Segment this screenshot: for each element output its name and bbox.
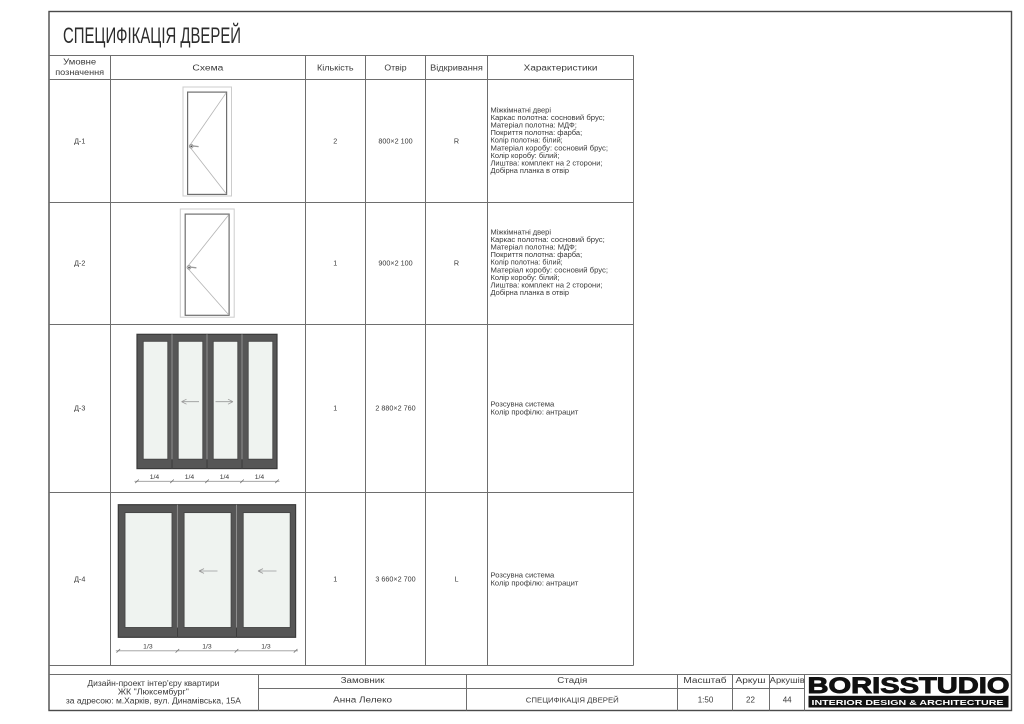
svg-text:Колір профілю: антрацит: Колір профілю: антрацит: [491, 580, 580, 588]
svg-text:Розсувна система: Розсувна система: [491, 402, 555, 409]
svg-text:Каркас полотна: сосновий брус;: Каркас полотна: сосновий брус;: [491, 236, 605, 244]
svg-text:СПЕЦИФІКАЦІЯ ДВЕРЕЙ: СПЕЦИФІКАЦІЯ ДВЕРЕЙ: [526, 695, 619, 704]
svg-text:Покриття полотна: фарба;: Покриття полотна: фарба;: [491, 129, 583, 137]
svg-text:Міжкімнатні двері: Міжкімнатні двері: [491, 229, 552, 237]
svg-text:Кількість: Кількість: [317, 64, 354, 73]
svg-text:Матеріал коробу: сосновий брус: Матеріал коробу: сосновий брус;: [491, 144, 609, 152]
svg-text:2 880×2 760: 2 880×2 760: [375, 404, 415, 413]
svg-text:Отвір: Отвір: [384, 64, 407, 73]
svg-text:Д-1: Д-1: [74, 137, 85, 146]
svg-text:Аркуш: Аркуш: [736, 676, 766, 685]
svg-text:3 660×2 700: 3 660×2 700: [375, 575, 415, 584]
svg-text:44: 44: [783, 695, 792, 704]
svg-text:Колір полотна: білий;: Колір полотна: білий;: [491, 137, 563, 145]
svg-text:Анна Лелеко: Анна Лелеко: [333, 695, 393, 704]
svg-text:Дизайн-проект інтер'єру кварти: Дизайн-проект інтер'єру квартири: [87, 679, 219, 688]
svg-text:Характеристики: Характеристики: [524, 64, 598, 73]
svg-text:1/4: 1/4: [255, 474, 265, 481]
svg-text:Замовник: Замовник: [341, 676, 386, 685]
svg-text:1/3: 1/3: [261, 643, 271, 650]
svg-text:1/4: 1/4: [185, 474, 195, 481]
svg-text:Добірна планка в отвір: Добірна планка в отвір: [491, 289, 570, 297]
svg-text:позначення: позначення: [55, 68, 104, 77]
svg-text:Розсувна система: Розсувна система: [491, 573, 555, 580]
svg-text:за адресою: м.Харків, вул. Дин: за адресою: м.Харків, вул. Динамівська, …: [66, 697, 242, 706]
svg-text:Д-2: Д-2: [74, 259, 85, 268]
svg-text:Стадія: Стадія: [557, 676, 587, 685]
svg-text:Колір профілю: антрацит: Колір профілю: антрацит: [491, 409, 580, 417]
svg-text:Матеріал полотна: МДФ;: Матеріал полотна: МДФ;: [491, 122, 577, 130]
svg-text:R: R: [454, 259, 459, 268]
svg-text:Матеріал полотна: МДФ;: Матеріал полотна: МДФ;: [491, 244, 577, 252]
svg-text:1/4: 1/4: [220, 474, 230, 481]
svg-text:1:50: 1:50: [698, 695, 714, 704]
svg-text:1: 1: [333, 259, 337, 268]
svg-text:Відкривання: Відкривання: [430, 64, 483, 73]
svg-text:800×2 100: 800×2 100: [378, 137, 412, 146]
svg-text:Умовне: Умовне: [63, 58, 97, 67]
svg-text:ЖК "Люксембург": ЖК "Люксембург": [118, 688, 189, 697]
svg-text:Д-3: Д-3: [74, 404, 85, 413]
svg-text:Масштаб: Масштаб: [683, 676, 727, 685]
svg-text:1/3: 1/3: [143, 643, 153, 650]
svg-text:22: 22: [746, 695, 755, 704]
svg-text:1: 1: [333, 404, 337, 413]
svg-text:INTERIOR DESIGN & ARCHITECTURE: INTERIOR DESIGN & ARCHITECTURE: [812, 700, 1004, 707]
svg-text:Каркас полотна: сосновий брус;: Каркас полотна: сосновий брус;: [491, 114, 605, 122]
svg-text:Д-4: Д-4: [74, 575, 85, 584]
svg-text:BORISSTUDIO: BORISSTUDIO: [808, 673, 1010, 698]
svg-text:1: 1: [333, 575, 337, 584]
svg-text:900×2 100: 900×2 100: [378, 259, 412, 268]
svg-text:Лиштва: комплект на 2 сторони;: Лиштва: комплект на 2 сторони;: [491, 160, 603, 167]
svg-text:Матеріал коробу: сосновий брус: Матеріал коробу: сосновий брус;: [491, 266, 609, 274]
svg-text:Колір полотна: білий;: Колір полотна: білий;: [491, 259, 563, 267]
svg-text:1/3: 1/3: [202, 643, 212, 650]
svg-text:Колір коробу: білий;: Колір коробу: білий;: [491, 152, 560, 160]
svg-text:Колір коробу: білий;: Колір коробу: білий;: [491, 274, 560, 282]
svg-text:Покриття полотна: фарба;: Покриття полотна: фарба;: [491, 251, 583, 259]
svg-text:R: R: [454, 137, 459, 146]
svg-text:1/4: 1/4: [150, 474, 160, 481]
svg-text:СПЕЦИФІКАЦІЯ ДВЕРЕЙ: СПЕЦИФІКАЦІЯ ДВЕРЕЙ: [63, 23, 241, 48]
svg-text:2: 2: [333, 137, 337, 146]
svg-text:Добірна планка в отвір: Добірна планка в отвір: [491, 167, 570, 175]
svg-text:Аркушів: Аркушів: [770, 676, 805, 685]
svg-text:Міжкімнатні двері: Міжкімнатні двері: [491, 107, 552, 115]
svg-text:Лиштва: комплект на 2 сторони;: Лиштва: комплект на 2 сторони;: [491, 282, 603, 289]
svg-text:L: L: [455, 575, 459, 584]
svg-text:Схема: Схема: [192, 64, 224, 73]
